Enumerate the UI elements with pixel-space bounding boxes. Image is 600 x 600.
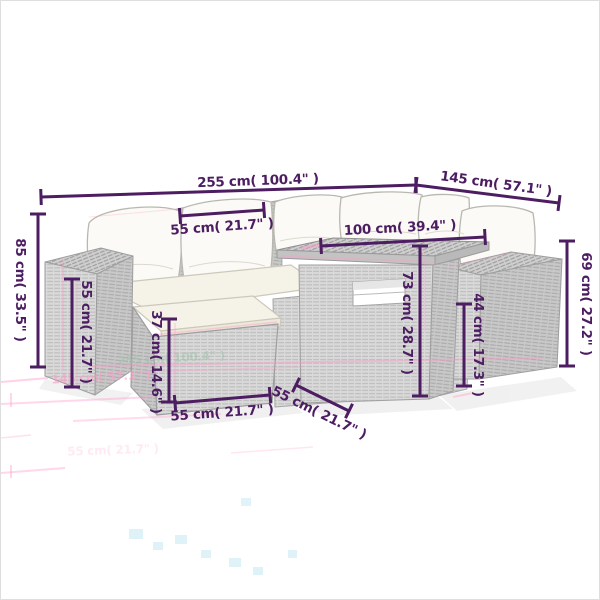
product-image: 255 cm( 100.4" )145 cm( 57.1" )55 cm( 21… <box>0 0 600 600</box>
dimension-label-armrest-height: 55 cm( 21.7" ) <box>78 280 94 384</box>
table-shelf-opening <box>353 279 405 306</box>
reflection-noise <box>129 498 297 575</box>
dimension-label-overall-height: 85 cm( 33.5" ) <box>12 238 28 342</box>
dimension-right-height: 69 cm( 27.2" ) <box>559 241 594 366</box>
furniture-illustration <box>39 192 577 429</box>
dimension-diagram: 255 cm( 100.4" )145 cm( 57.1" )55 cm( 21… <box>1 1 599 599</box>
dimension-label-table-height: 73 cm( 28.7" ) <box>399 271 415 375</box>
dimension-label-seat-height: 44 cm( 17.3" ) <box>470 293 486 397</box>
ghost-label-reflect-ottoman-width: 55 cm( 21.7" ) <box>67 441 159 458</box>
dimension-label-right-height: 69 cm( 27.2" ) <box>578 252 594 356</box>
dimension-label-ottoman-height: 37 cm( 14.6" ) <box>148 310 164 414</box>
dimension-overall-height: 85 cm( 33.5" ) <box>12 214 46 367</box>
